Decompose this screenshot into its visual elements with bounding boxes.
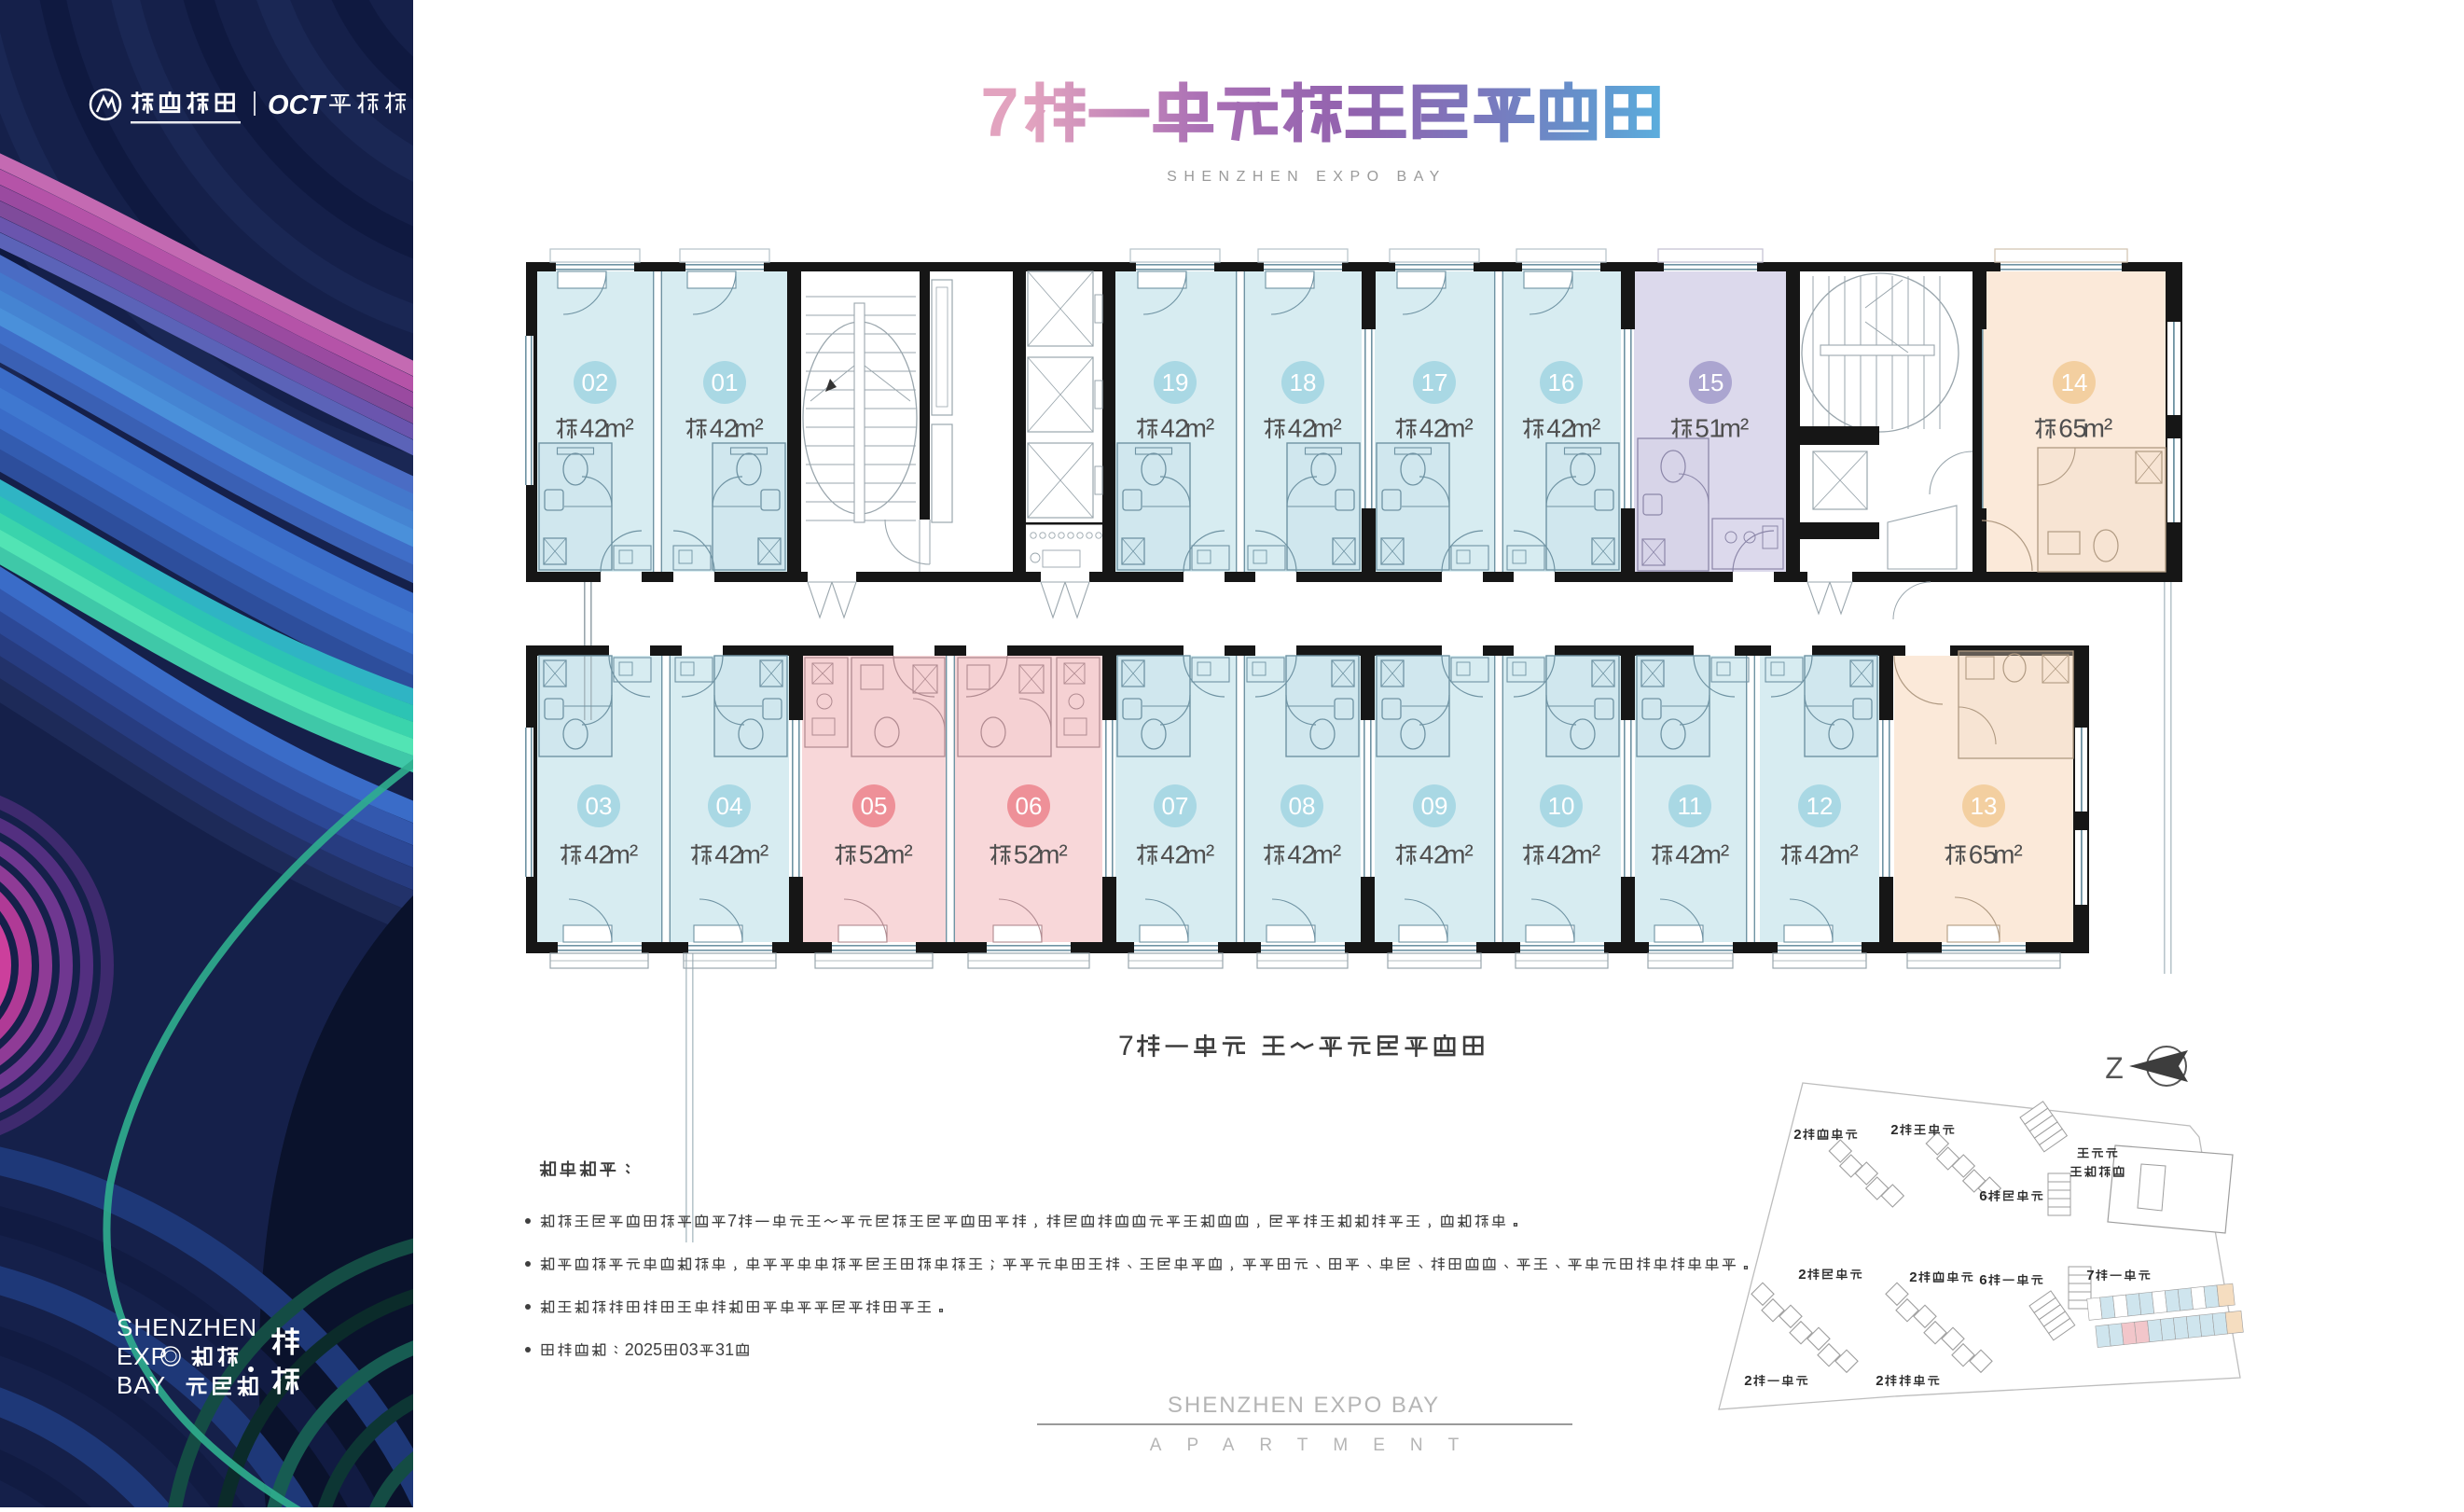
svg-text:03: 03 (586, 792, 613, 820)
svg-text:7: 7 (727, 1212, 737, 1230)
svg-text:42m²: 42m² (1287, 840, 1341, 869)
svg-text:08: 08 (1289, 792, 1316, 820)
svg-text:05: 05 (861, 792, 888, 820)
svg-text:01: 01 (712, 368, 739, 396)
svg-text:7: 7 (980, 74, 1018, 151)
svg-text:17: 17 (1421, 368, 1448, 396)
svg-text:2: 2 (1744, 1373, 1751, 1389)
svg-text:42m²: 42m² (1288, 414, 1342, 443)
svg-text:19: 19 (1162, 368, 1189, 396)
svg-text:OCT: OCT (268, 90, 327, 120)
svg-text:65m²: 65m² (2058, 414, 2112, 443)
svg-text:06: 06 (1016, 792, 1043, 820)
svg-text:2: 2 (1793, 1127, 1801, 1143)
svg-text:42m²: 42m² (1546, 414, 1600, 443)
svg-text:04: 04 (716, 792, 743, 820)
svg-text:6: 6 (1979, 1188, 1986, 1204)
svg-text:65m²: 65m² (1969, 840, 2023, 869)
svg-text:SHENZHEN EXPO BAY: SHENZHEN EXPO BAY (1167, 169, 1447, 185)
svg-text:42m²: 42m² (710, 414, 764, 443)
svg-text:APARTMENT: APARTMENT (1150, 1436, 1484, 1455)
svg-text:SHENZHEN EXPO BAY: SHENZHEN EXPO BAY (1168, 1393, 1440, 1418)
svg-text:42m²: 42m² (1419, 840, 1474, 869)
svg-text:42m²: 42m² (580, 414, 634, 443)
svg-text:10: 10 (1548, 792, 1575, 820)
svg-text:15: 15 (1697, 368, 1724, 396)
svg-text:16: 16 (1548, 368, 1575, 396)
svg-text:42m²: 42m² (714, 840, 768, 869)
svg-text:42m²: 42m² (1419, 414, 1474, 443)
svg-text:42m²: 42m² (1675, 840, 1729, 869)
svg-text:7: 7 (2086, 1268, 2094, 1283)
svg-text:2: 2 (1890, 1122, 1898, 1138)
svg-text:12: 12 (1806, 792, 1834, 820)
svg-text:52m²: 52m² (1014, 840, 1068, 869)
svg-text:SHENZHEN: SHENZHEN (117, 1313, 257, 1341)
svg-text:42m²: 42m² (1805, 840, 1859, 869)
svg-text:2: 2 (1909, 1269, 1917, 1285)
svg-text:02: 02 (582, 368, 609, 396)
svg-text:BAY: BAY (117, 1371, 166, 1399)
svg-text:18: 18 (1290, 368, 1317, 396)
svg-text:42m²: 42m² (1546, 840, 1600, 869)
svg-text:20250331: 20250331 (625, 1340, 734, 1359)
svg-text:11: 11 (1678, 792, 1703, 820)
svg-text:14: 14 (2061, 368, 2088, 396)
svg-text:7: 7 (1118, 1031, 1134, 1061)
svg-text:2: 2 (1876, 1373, 1883, 1389)
svg-text:EXP: EXP (117, 1342, 168, 1370)
svg-text:07: 07 (1162, 792, 1189, 820)
svg-text:Z: Z (2105, 1051, 2124, 1085)
svg-text:42m²: 42m² (1160, 414, 1214, 443)
svg-text:13: 13 (1971, 792, 1998, 820)
svg-text:42m²: 42m² (1160, 840, 1214, 869)
svg-text:42m²: 42m² (584, 840, 638, 869)
svg-text:2: 2 (1798, 1267, 1806, 1283)
svg-text:6: 6 (1979, 1272, 1986, 1288)
svg-text:09: 09 (1421, 792, 1448, 820)
svg-text:52m²: 52m² (859, 840, 913, 869)
